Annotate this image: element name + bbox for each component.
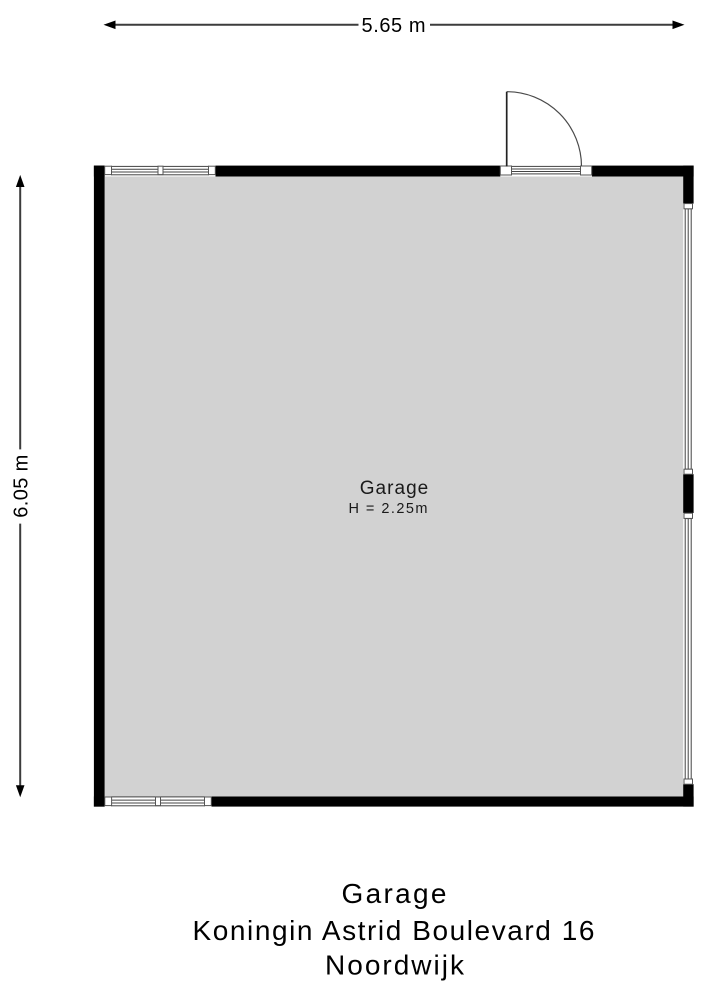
svg-text:H = 2.25m: H = 2.25m bbox=[349, 501, 428, 517]
svg-text:Garage: Garage bbox=[360, 478, 429, 499]
svg-text:Koningin Astrid Boulevard 16: Koningin Astrid Boulevard 16 bbox=[193, 915, 595, 946]
svg-text:5.65 m: 5.65 m bbox=[362, 15, 426, 37]
svg-text:Garage: Garage bbox=[342, 878, 447, 909]
svg-text:Noordwijk: Noordwijk bbox=[325, 950, 465, 981]
svg-text:6.05 m: 6.05 m bbox=[11, 455, 33, 518]
